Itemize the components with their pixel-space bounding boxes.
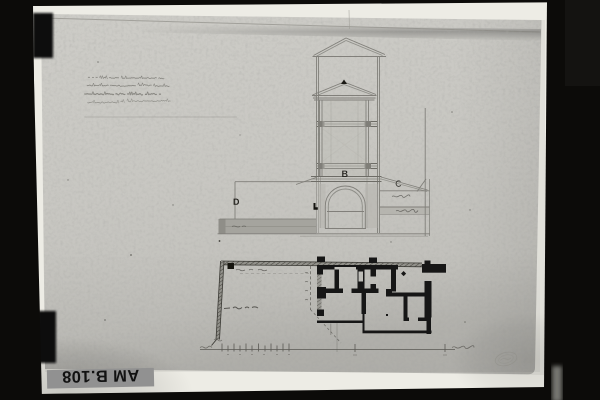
svg-text:AM B.108: AM B.108 — [62, 366, 140, 386]
